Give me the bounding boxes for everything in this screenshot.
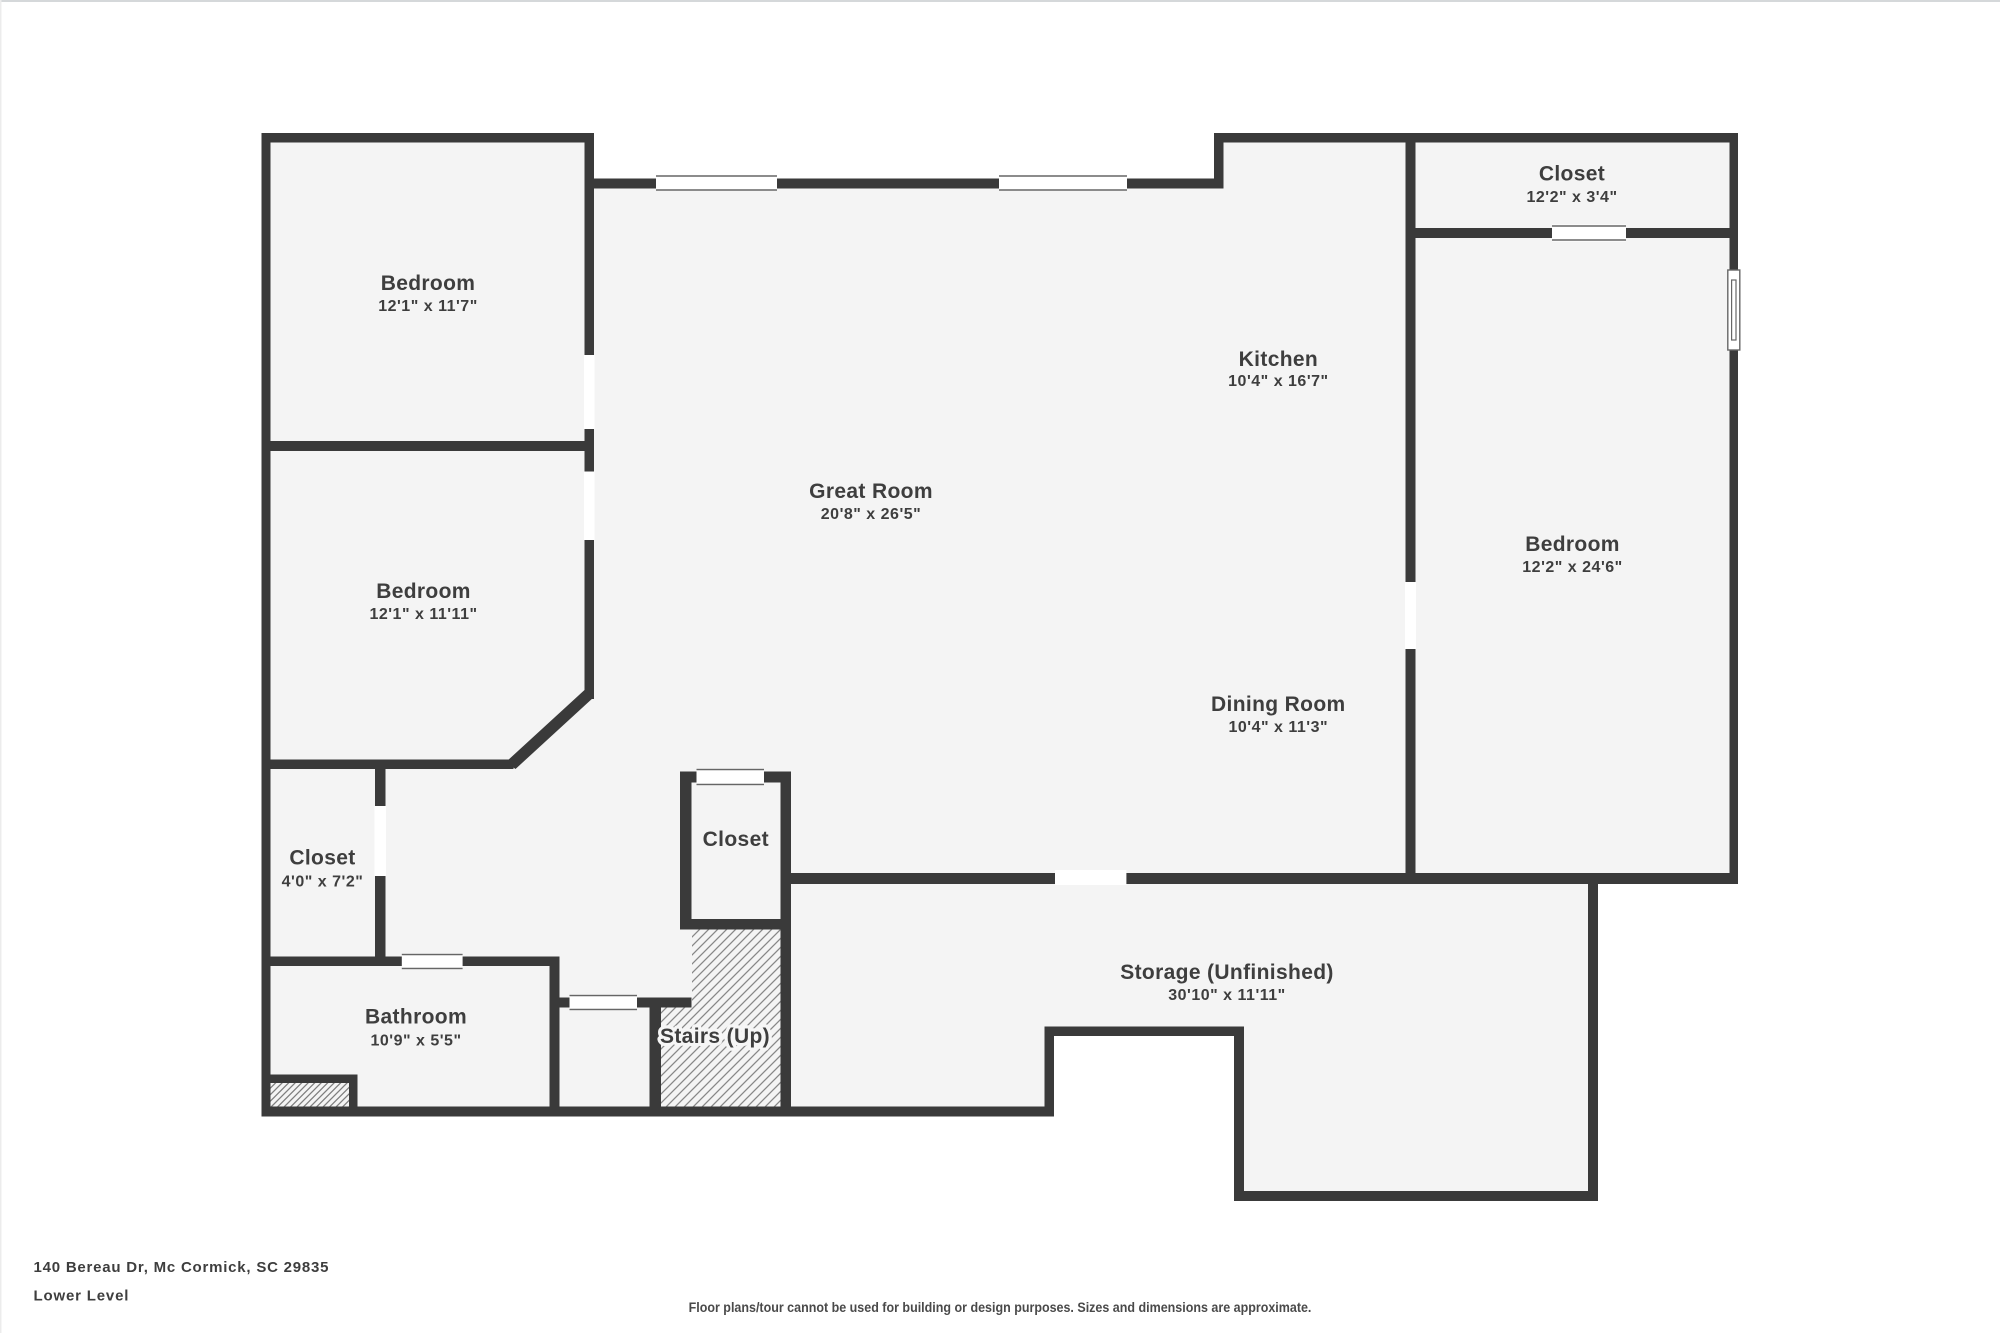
svg-text:Closet: Closet xyxy=(289,847,355,870)
svg-text:10'4" x 16'7": 10'4" x 16'7" xyxy=(1228,373,1328,390)
svg-text:Bedroom: Bedroom xyxy=(376,580,471,603)
svg-text:140 Bereau Dr, Mc Cormick, SC: 140 Bereau Dr, Mc Cormick, SC 29835 xyxy=(34,1259,330,1276)
svg-text:Bathroom: Bathroom xyxy=(365,1006,467,1029)
svg-text:Closet: Closet xyxy=(703,828,769,851)
svg-text:Lower Level: Lower Level xyxy=(34,1288,130,1305)
svg-text:Floor plans/tour cannot be use: Floor plans/tour cannot be used for buil… xyxy=(689,1299,1312,1315)
svg-text:12'1" x 11'11": 12'1" x 11'11" xyxy=(369,606,477,623)
svg-text:10'9" x 5'5": 10'9" x 5'5" xyxy=(370,1033,461,1050)
svg-text:30'10" x 11'11": 30'10" x 11'11" xyxy=(1168,987,1286,1004)
svg-text:12'1" x 11'7": 12'1" x 11'7" xyxy=(378,298,478,315)
svg-text:Storage (Unfinished): Storage (Unfinished) xyxy=(1120,961,1334,984)
svg-text:4'0" x 7'2": 4'0" x 7'2" xyxy=(282,874,364,891)
svg-text:Stairs (Up): Stairs (Up) xyxy=(660,1025,770,1048)
svg-text:Bedroom: Bedroom xyxy=(1525,533,1620,556)
svg-text:Closet: Closet xyxy=(1539,163,1605,186)
svg-text:Bedroom: Bedroom xyxy=(381,272,476,295)
svg-text:12'2" x 24'6": 12'2" x 24'6" xyxy=(1522,559,1622,576)
svg-text:12'2" x 3'4": 12'2" x 3'4" xyxy=(1526,189,1617,206)
svg-text:Kitchen: Kitchen xyxy=(1239,348,1318,371)
svg-text:Great Room: Great Room xyxy=(809,480,933,503)
svg-text:Dining Room: Dining Room xyxy=(1211,693,1346,716)
svg-text:20'8" x 26'5": 20'8" x 26'5" xyxy=(821,506,921,523)
svg-text:10'4" x 11'3": 10'4" x 11'3" xyxy=(1229,719,1329,736)
